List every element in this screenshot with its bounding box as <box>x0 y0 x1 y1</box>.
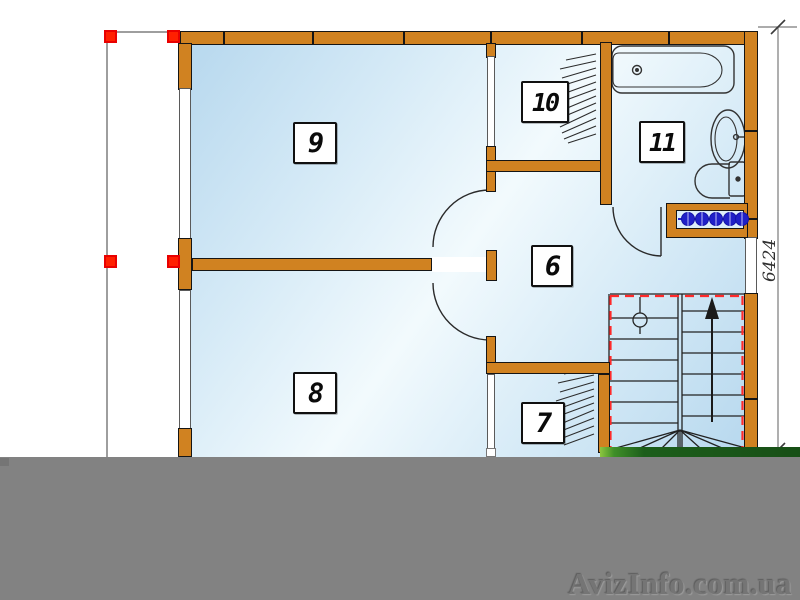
dimension-value: 6424 <box>760 239 780 282</box>
wall-left-post-bottom <box>178 428 192 457</box>
wall-under-room10 <box>486 160 612 172</box>
partition-9-10 <box>487 56 495 148</box>
stair-red-dashes <box>610 296 744 448</box>
room-label-8: 8 <box>293 372 337 414</box>
door-arc-bathroom <box>613 207 661 256</box>
balcony-post-marker <box>104 255 117 268</box>
wall-joint <box>581 32 583 44</box>
window-left-lower <box>179 290 191 430</box>
room-label-6: 6 <box>531 245 573 287</box>
room-label-9: 9 <box>293 122 337 164</box>
watermark-text: AvizInfo.com.ua <box>568 566 792 600</box>
balcony-post-marker <box>167 255 180 268</box>
wall-joint <box>403 32 405 44</box>
room-number: 8 <box>308 378 322 409</box>
room-label-11: 11 <box>639 121 685 163</box>
washbasin-icon <box>711 110 745 168</box>
wall-8-corridor-lower <box>486 336 496 364</box>
door-arc-room9 <box>433 190 490 247</box>
stair-up-arrow-icon <box>705 297 719 422</box>
wall-room7-right <box>598 374 610 453</box>
censor-band-artifact <box>0 458 9 466</box>
room-number: 7 <box>536 408 550 439</box>
wall-joint <box>745 130 757 132</box>
balcony-post-marker <box>104 30 117 43</box>
door-opening-center <box>432 257 486 272</box>
partition-8-7 <box>487 374 495 450</box>
wall-center-post <box>486 250 497 281</box>
wall-center <box>192 258 432 271</box>
radiator-niche-slot <box>676 210 744 229</box>
wall-left-post-mid <box>178 238 192 290</box>
wall-right-lower <box>744 293 758 457</box>
wall-joint <box>223 32 225 44</box>
wall-room7-top <box>486 362 610 374</box>
stair-newel-circle <box>633 313 647 327</box>
room-number: 11 <box>649 128 675 157</box>
toilet-icon <box>695 162 745 198</box>
window-right <box>745 237 757 295</box>
wall-joint <box>668 32 670 44</box>
balcony-post-marker <box>167 30 180 43</box>
room-label-7: 7 <box>521 402 565 444</box>
wall-joint <box>312 32 314 44</box>
room-number: 6 <box>545 251 559 282</box>
window-left-upper <box>179 88 191 240</box>
wall-left-post-top <box>178 43 192 90</box>
bathtub-icon <box>612 46 734 93</box>
dimension-line <box>758 20 797 457</box>
room-label-10: 10 <box>521 81 569 123</box>
staircase <box>609 294 744 448</box>
room-number: 10 <box>532 88 558 117</box>
room-number: 9 <box>308 128 322 159</box>
wall-top <box>180 31 758 45</box>
partition-end-cap <box>486 448 496 457</box>
floor-plan-page: 6424 <box>0 0 800 600</box>
balcony-outline <box>107 32 180 457</box>
wall-bathroom-left <box>600 42 612 205</box>
door-arc-room8 <box>433 283 490 340</box>
wall-joint <box>745 398 757 400</box>
